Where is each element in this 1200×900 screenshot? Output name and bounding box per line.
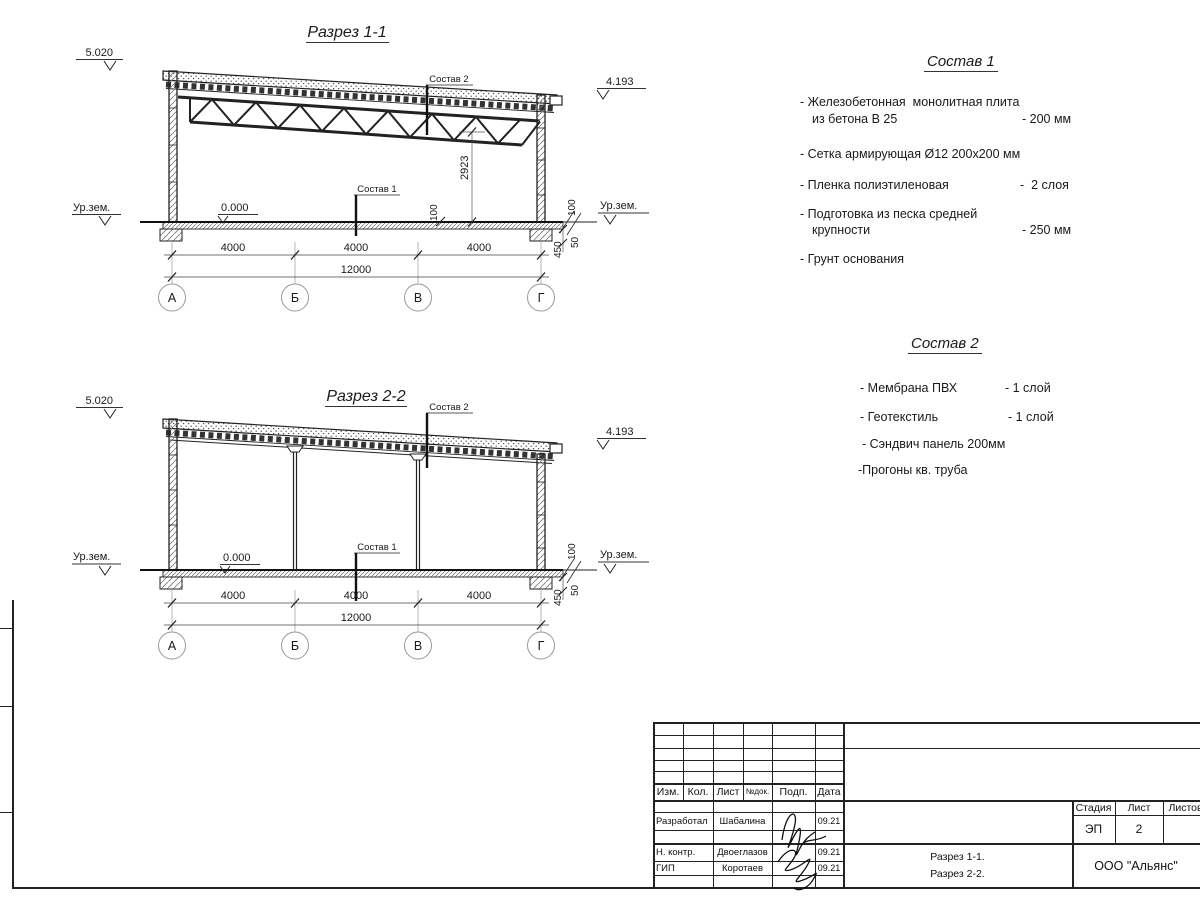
ground-level-right: Ур.зем.: [598, 200, 649, 224]
svg-text:0.000: 0.000: [223, 552, 251, 564]
foundation-right: [530, 229, 552, 241]
svg-text:4.193: 4.193: [606, 426, 634, 438]
list-item: - Сэндвич панель 200мм: [862, 437, 1005, 451]
tb-header-sheet: Лист: [1115, 800, 1163, 815]
dim-4000-2: 4000: [344, 590, 368, 602]
frame-left-line: [12, 600, 14, 889]
svg-text:4.193: 4.193: [606, 76, 634, 88]
tb-header-izm: Изм.: [653, 783, 683, 800]
drawing-sheet: Разрез 1-1: [0, 0, 1200, 900]
wall-right: [537, 454, 545, 570]
titleblock-line: [653, 748, 1200, 749]
dim-4000-3: 4000: [467, 590, 491, 602]
dim-4000-2: 4000: [344, 242, 368, 254]
svg-text:Б: Б: [291, 291, 299, 305]
foundation-left: [160, 229, 182, 241]
section-2-2-drawing: Разрез 2-2: [72, 388, 649, 659]
tb-role-gip: ГИП: [653, 861, 713, 875]
tb-header-kol: Кол.: [683, 783, 713, 800]
dim-4000-1: 4000: [221, 242, 245, 254]
dim-100-floor: 100: [429, 204, 440, 221]
column-V: [410, 454, 426, 570]
composition-2-list: Состав 2 - Мембрана ПВХ - 1 слой - Геоте…: [856, 335, 1116, 485]
frame-tick: [0, 628, 12, 629]
dim-4000-1: 4000: [221, 590, 245, 602]
svg-text:Г: Г: [538, 639, 545, 653]
tb-header-stage: Стадия: [1072, 800, 1115, 815]
list-item-value: - 250 мм: [1022, 223, 1071, 237]
dim-12000: 12000: [341, 264, 372, 276]
svg-text:А: А: [168, 291, 177, 305]
dim-4000-3: 4000: [467, 242, 491, 254]
list-item-value: - 1 слой: [1005, 381, 1051, 395]
tb-stage-value: ЭП: [1072, 815, 1115, 843]
dim-100-right: 100: [567, 543, 578, 560]
list-item: - Подготовка из песка средней: [800, 207, 977, 221]
svg-text:Ур.зем.: Ур.зем.: [73, 551, 110, 563]
list-item-value: - 200 мм: [1022, 112, 1071, 126]
signature-strokes: [768, 796, 840, 896]
section2-title: Разрез 2-2: [326, 388, 405, 405]
sostav2-leader-label: Состав 2: [429, 402, 468, 413]
roof-slab: [163, 419, 557, 452]
tb-name-ncontrol: Двоеглазов: [713, 843, 772, 861]
svg-text:Ур.зем.: Ур.зем.: [73, 202, 110, 214]
frame-tick: [0, 706, 12, 707]
ground-level-left: Ур.зем.: [72, 551, 121, 575]
tb-organization: ООО "Альянс": [1072, 843, 1200, 888]
wall-left: [169, 71, 177, 222]
tb-header-sheets: Листов: [1163, 800, 1200, 815]
foundation-left: [160, 577, 182, 589]
list-item: -Прогоны кв. труба: [858, 463, 967, 477]
list-item: из бетона В 25: [812, 112, 897, 126]
dim-100-right: 100: [567, 199, 578, 216]
dim-50: 50: [570, 584, 581, 596]
tb-doc-line1: Разрез 1-1.: [930, 849, 984, 865]
frame-tick: [0, 812, 12, 813]
roof-truss: [178, 97, 540, 145]
composition-1-title: Состав 1: [924, 53, 998, 72]
svg-text:5.020: 5.020: [85, 47, 113, 59]
tb-name-gip: Коротаев: [713, 861, 772, 875]
tb-role-ncontrol: Н. контр.: [653, 843, 713, 861]
elevation-5020: 5.020: [76, 395, 123, 418]
section1-title: Разрез 1-1: [307, 24, 386, 41]
sostav1-leader-label: Состав 1: [357, 184, 396, 195]
list-item: - Геотекстиль: [860, 410, 938, 424]
tb-role-developed: Разработал: [653, 812, 713, 830]
svg-text:Г: Г: [538, 291, 545, 305]
list-item: - Пленка полиэтиленовая: [800, 178, 949, 192]
list-item-value: - 1 слой: [1008, 410, 1054, 424]
list-item: - Мембрана ПВХ: [860, 381, 957, 395]
tb-sheet-value: 2: [1115, 815, 1163, 843]
tb-document-name: Разрез 1-1. Разрез 2-2.: [843, 843, 1072, 888]
sostav2-leader-label: Состав 2: [429, 74, 468, 85]
svg-text:В: В: [414, 639, 422, 653]
elevation-4193: 4.193: [597, 76, 646, 99]
column-B: [287, 446, 303, 570]
tb-header-list: Лист: [713, 783, 743, 800]
dim-2923: 2923: [459, 156, 471, 180]
section-1-1-drawing: Разрез 1-1: [72, 24, 649, 311]
svg-text:5.020: 5.020: [85, 395, 113, 407]
composition-1-list: Состав 1 - Железобетонная монолитная пли…: [800, 50, 1100, 280]
dim-12000: 12000: [341, 612, 372, 624]
tb-name-developed: Шабалина: [713, 812, 772, 830]
tb-doc-line2: Разрез 2-2.: [930, 866, 984, 882]
svg-text:0.000: 0.000: [221, 202, 249, 214]
elevation-5020: 5.020: [76, 47, 123, 70]
elevation-zero: 0.000: [218, 202, 258, 223]
elevation-4193: 4.193: [597, 426, 646, 449]
roof-edge-cap: [550, 96, 562, 105]
ground-level-left: Ур.зем.: [72, 202, 121, 225]
svg-text:Ур.зем.: Ур.зем.: [600, 200, 637, 212]
list-item: - Сетка армирующая Ø12 200x200 мм: [800, 147, 1020, 161]
svg-text:В: В: [414, 291, 422, 305]
dim-50: 50: [570, 236, 581, 248]
ground-level-right: Ур.зем.: [598, 549, 649, 573]
composition-2-title: Состав 2: [908, 335, 982, 354]
foundation-right: [530, 577, 552, 589]
wall-left: [169, 419, 177, 570]
axis-bubbles-s1: А Б В Г: [159, 284, 555, 311]
svg-text:Ур.зем.: Ур.зем.: [600, 549, 637, 561]
list-item: - Железобетонная монолитная плита: [800, 95, 1019, 109]
svg-text:А: А: [168, 639, 177, 653]
wall-right: [537, 95, 545, 222]
list-item: крупности: [812, 223, 870, 237]
roof-edge-cap: [550, 444, 562, 453]
svg-text:Б: Б: [291, 639, 299, 653]
sostav1-leader-label: Состав 1: [357, 542, 396, 553]
list-item-value: - 2 слоя: [1020, 178, 1069, 192]
axis-bubbles-s2: А Б В Г: [159, 632, 555, 659]
titleblock-line: [653, 722, 1200, 724]
list-item: - Грунт основания: [800, 252, 904, 266]
